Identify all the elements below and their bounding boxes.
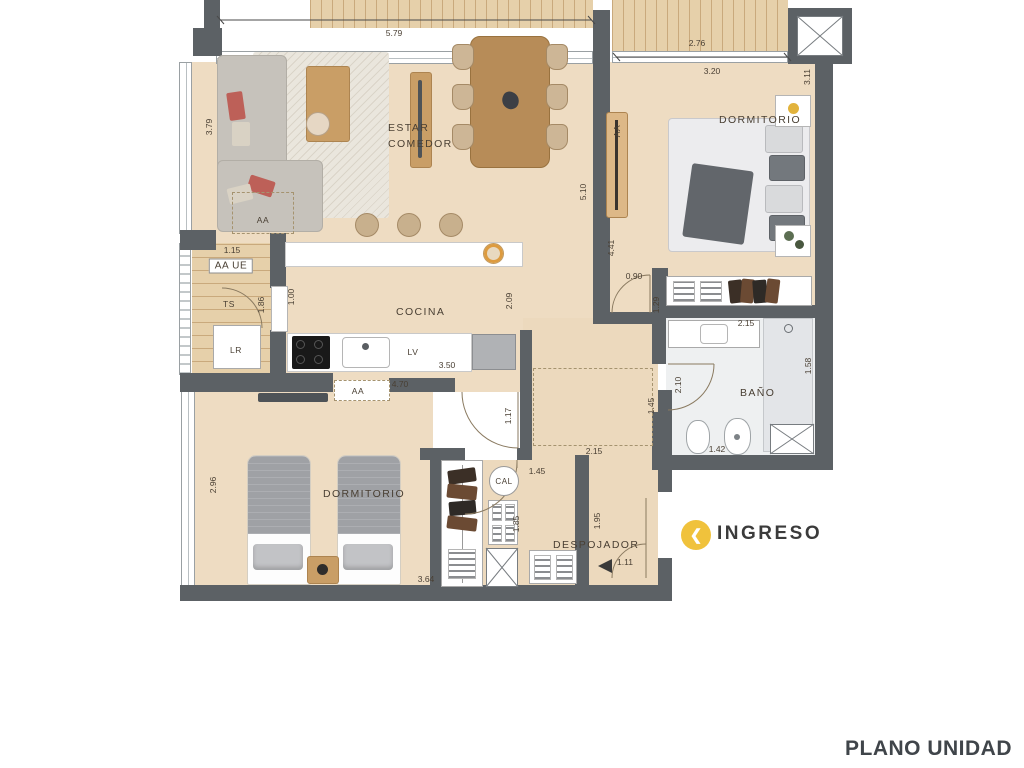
ingreso-label: INGRESO [717, 523, 822, 545]
dimension-label: 2.10 [673, 377, 683, 394]
dimension-label: 1.85 [511, 516, 521, 533]
fixture-label-lr: LR [230, 345, 242, 355]
dimension-label: 3.50 [439, 360, 456, 370]
room-label-line: DORMITORIO [719, 112, 801, 128]
room-label-line: COCINA [396, 304, 445, 320]
fixture-label-lv: LV [408, 347, 419, 357]
dimension-label: 3.64 [418, 574, 435, 584]
room-label-line: BAÑO [740, 385, 775, 401]
dimension-label: 2.15 [586, 446, 603, 456]
fixture-label-aa-ue: AA UE [209, 259, 253, 274]
ingreso-arrow-icon: ❮ [681, 520, 711, 550]
fixture-label-ts: TS [223, 299, 235, 309]
fixture-label-aa-living: AA [257, 215, 270, 225]
dimension-label: 2.09 [504, 293, 514, 310]
dimension-label: 1.45 [529, 466, 546, 476]
dimension-label: 2.15 [738, 318, 755, 328]
dimension-label: 4.70 [392, 379, 409, 389]
room-label-line: ESTAR [388, 120, 429, 136]
dimension-label: 3.20 [704, 66, 721, 76]
dimension-label: 2.76 [689, 38, 706, 48]
dimension-label: 0.90 [626, 271, 643, 281]
dimension-label: 1.15 [224, 245, 241, 255]
fixture-label-cal: CAL [489, 466, 519, 496]
room-label-line: COMEDOR [388, 136, 453, 152]
dimension-label: 3.79 [204, 119, 214, 136]
fixture-label-aa-cocina: AA [352, 386, 365, 396]
dimension-label: 4.41 [606, 240, 616, 257]
dimension-label: 1.00 [286, 289, 296, 306]
dimension-label: 5.10 [578, 184, 588, 201]
dimension-label: 2.96 [208, 477, 218, 494]
dimension-label: 3.11 [802, 69, 812, 85]
dimension-label: 1.45 [646, 398, 656, 415]
dimension-label: 1.11 [617, 557, 633, 567]
dimension-label: 1.86 [256, 297, 266, 314]
dimension-label: 1.58 [803, 358, 813, 375]
room-label-line: DESPOJADOR [553, 537, 639, 553]
dimension-label: 1.95 [592, 513, 602, 530]
label-layer: ESTARCOMEDORDORMITORIOCOCINABAÑODORMITOR… [0, 0, 1024, 768]
room-label-line: DORMITORIO [323, 486, 405, 502]
dimension-label: 1.42 [709, 444, 726, 454]
fixture-label-aa-dormitorio: AA [612, 125, 622, 138]
dimension-label: 5.79 [386, 28, 403, 38]
dimension-label: 1.17 [503, 408, 513, 425]
page-title: PLANO UNIDAD [845, 737, 1012, 761]
dimension-label: 1.29 [651, 297, 661, 314]
floor-plan-page: ESTARCOMEDORDORMITORIOCOCINABAÑODORMITOR… [0, 0, 1024, 768]
